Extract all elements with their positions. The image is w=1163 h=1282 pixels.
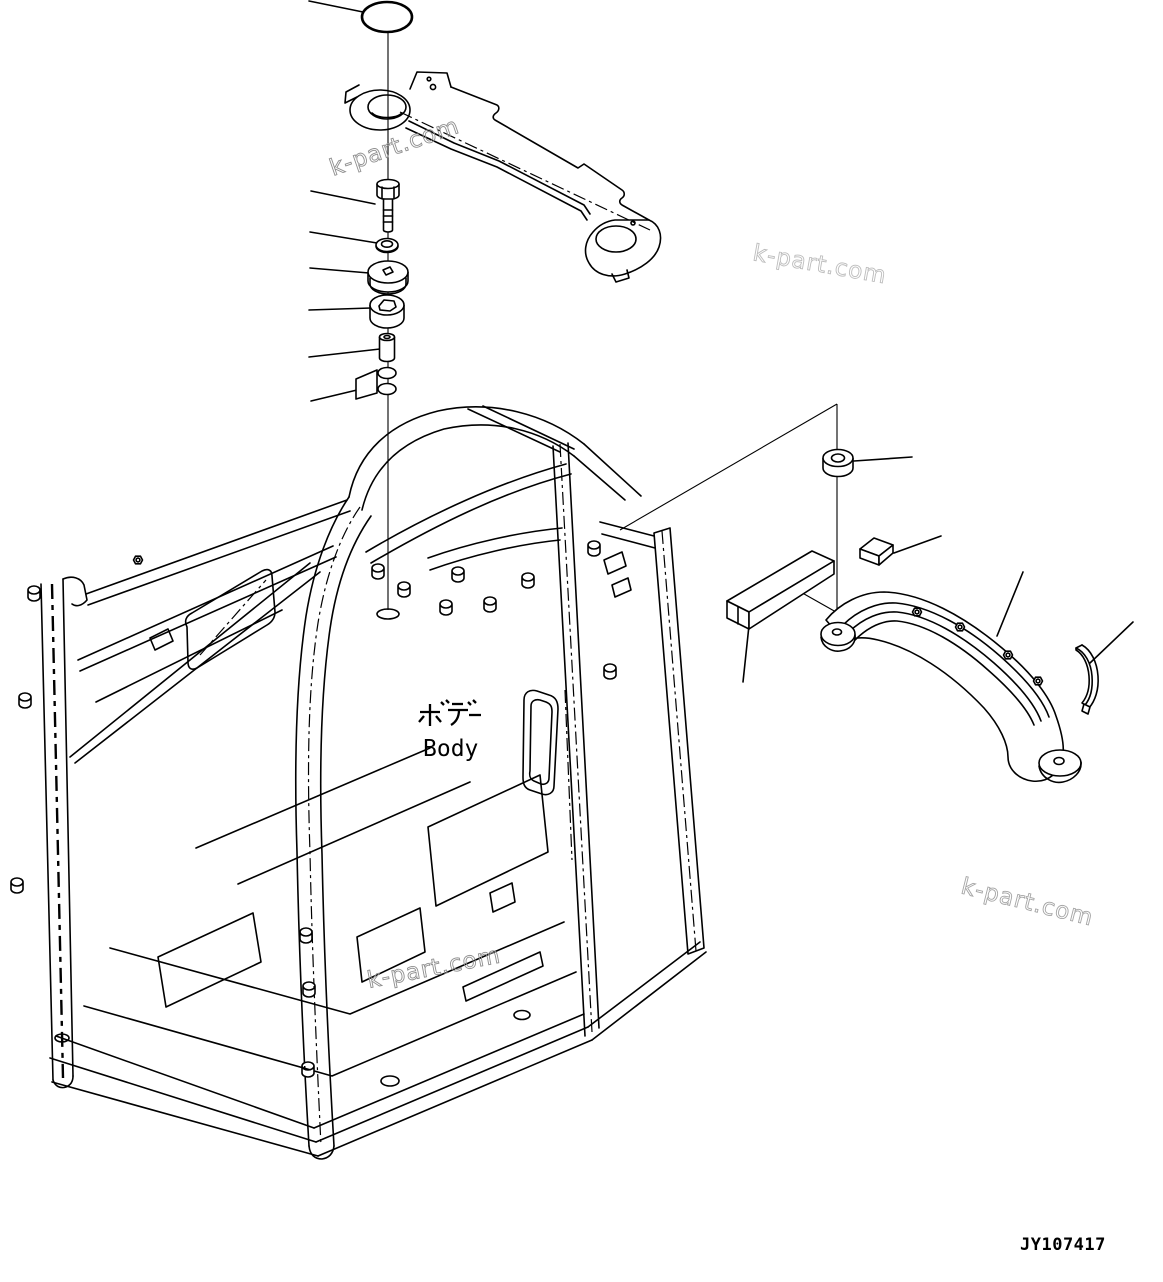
part-bar-cushion [727, 551, 834, 682]
parts-diagram: Body k-part.com k-part.com k-part.com k-… [0, 0, 1163, 1282]
part-bolt [311, 180, 399, 233]
part-clip [311, 368, 396, 402]
centerline-diagonal [620, 404, 837, 530]
cab-floor [50, 541, 706, 1156]
body-label-en: Body [423, 736, 478, 762]
cab-body [11, 406, 706, 1159]
parts-diagram-page: Body k-part.com k-part.com k-part.com k-… [0, 0, 1163, 1282]
part-cushion-upper [310, 261, 408, 294]
body-label-jp [419, 700, 481, 726]
leader-bolt [311, 191, 375, 204]
leader-cushion-upper [310, 268, 369, 273]
watermark-top-left: k-part.com [326, 113, 462, 182]
cab-right-pillar [553, 443, 631, 1036]
cab-a-pillar [296, 497, 371, 1159]
part-trim-strip [1076, 622, 1133, 714]
part-spacer [309, 334, 395, 362]
cab-left-pillar [11, 577, 87, 1087]
part-ring [823, 450, 912, 477]
cap-icon [362, 2, 412, 32]
part-washer [310, 232, 398, 253]
part-grip-handle [821, 572, 1081, 782]
leader-grip-handle [997, 572, 1023, 636]
cab-side-panel [600, 522, 704, 954]
watermark-top-right: k-part.com [751, 240, 889, 289]
cab-roof [349, 406, 641, 570]
leader-ring [854, 457, 912, 461]
leader-cap [309, 1, 363, 12]
leader-washer [310, 232, 377, 243]
part-cushion-lower [309, 295, 404, 328]
leader-block [894, 536, 941, 553]
leader-clip [311, 390, 357, 401]
part-block [860, 536, 941, 565]
mount-hole [377, 609, 399, 619]
part-number: JY107417 [1020, 1235, 1106, 1255]
leader-cushion-lower [309, 308, 371, 310]
cab-rails [70, 500, 350, 763]
leader-spacer [309, 349, 380, 357]
leader-trim-strip [1090, 622, 1133, 663]
part-cap [309, 1, 412, 32]
body-label: Body [419, 700, 481, 762]
watermark-mid-right: k-part.com [959, 874, 1097, 932]
watermark-bottom-center: k-part.com [365, 943, 503, 994]
